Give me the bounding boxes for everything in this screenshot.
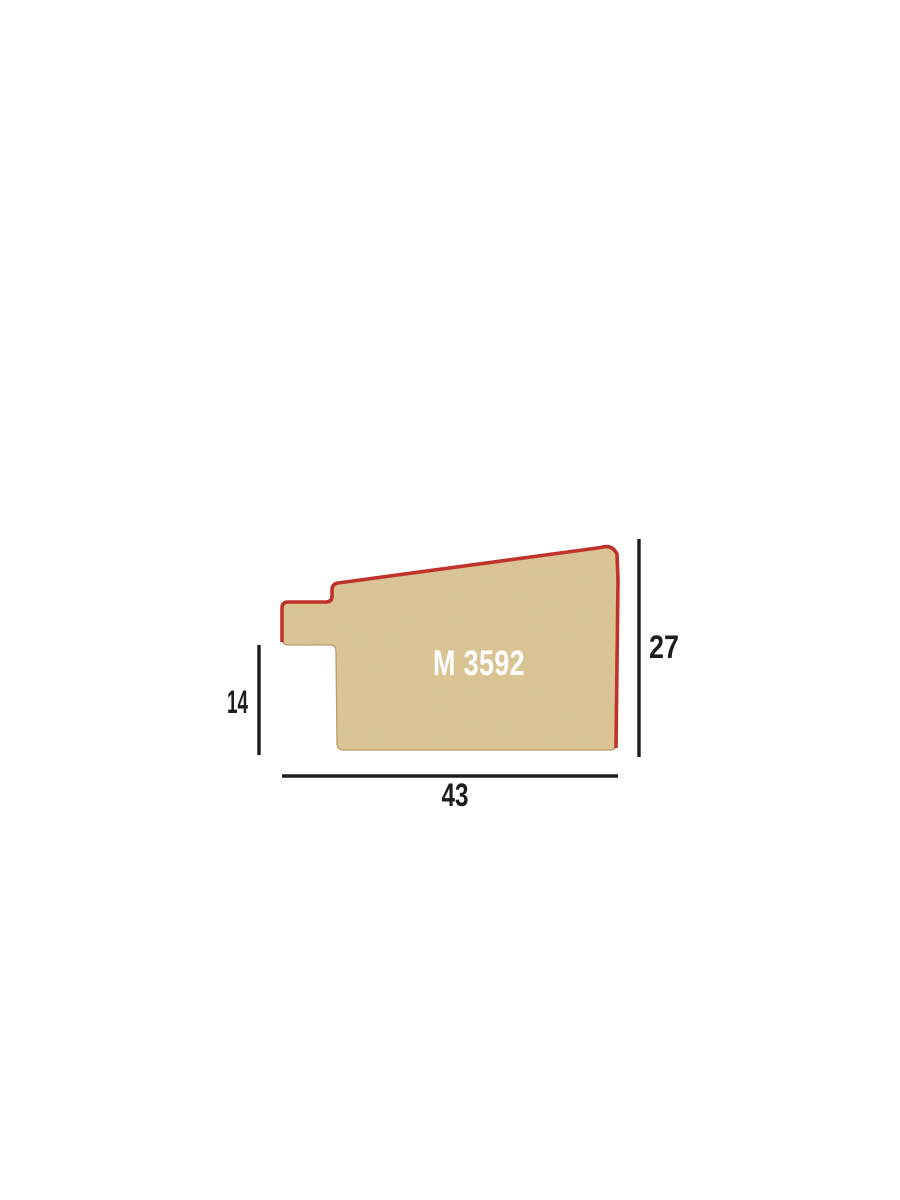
profile-code-label: M 3592	[433, 644, 525, 683]
height-dimension-label: 27	[649, 629, 679, 665]
moulding-profile-diagram: M 3592 27 14 43	[0, 0, 900, 1200]
width-dimension-label: 43	[442, 777, 469, 813]
moulding-profile: M 3592	[282, 547, 618, 750]
page: M 3592 27 14 43	[0, 0, 900, 1200]
rebate-dimension-label: 14	[227, 684, 248, 720]
